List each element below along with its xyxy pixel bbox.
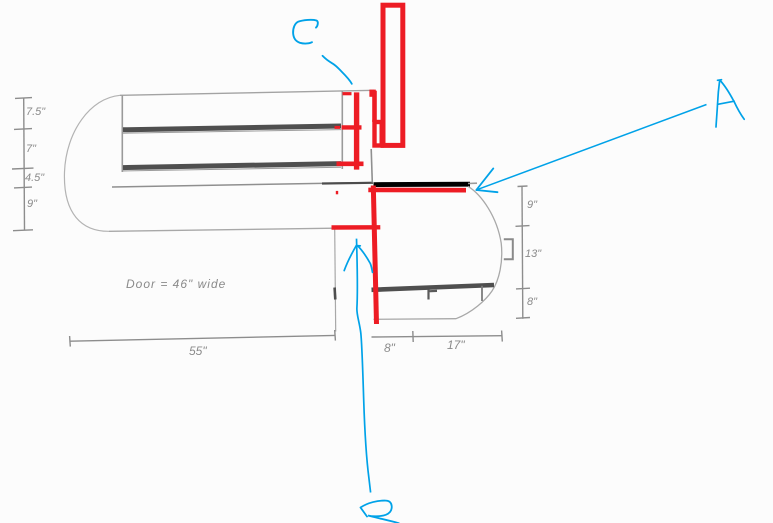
svg-text:55": 55" [189,344,207,358]
svg-text:7": 7" [26,143,37,155]
svg-text:9": 9" [27,198,38,210]
svg-text:17": 17" [447,338,465,352]
svg-text:9": 9" [527,199,538,211]
svg-text:4.5": 4.5" [25,172,45,184]
svg-text:Door = 46" wide: Door = 46" wide [126,277,226,291]
svg-text:8": 8" [384,341,396,355]
svg-text:8": 8" [527,296,538,308]
svg-text:13": 13" [525,248,542,260]
svg-text:7.5": 7.5" [26,106,46,118]
